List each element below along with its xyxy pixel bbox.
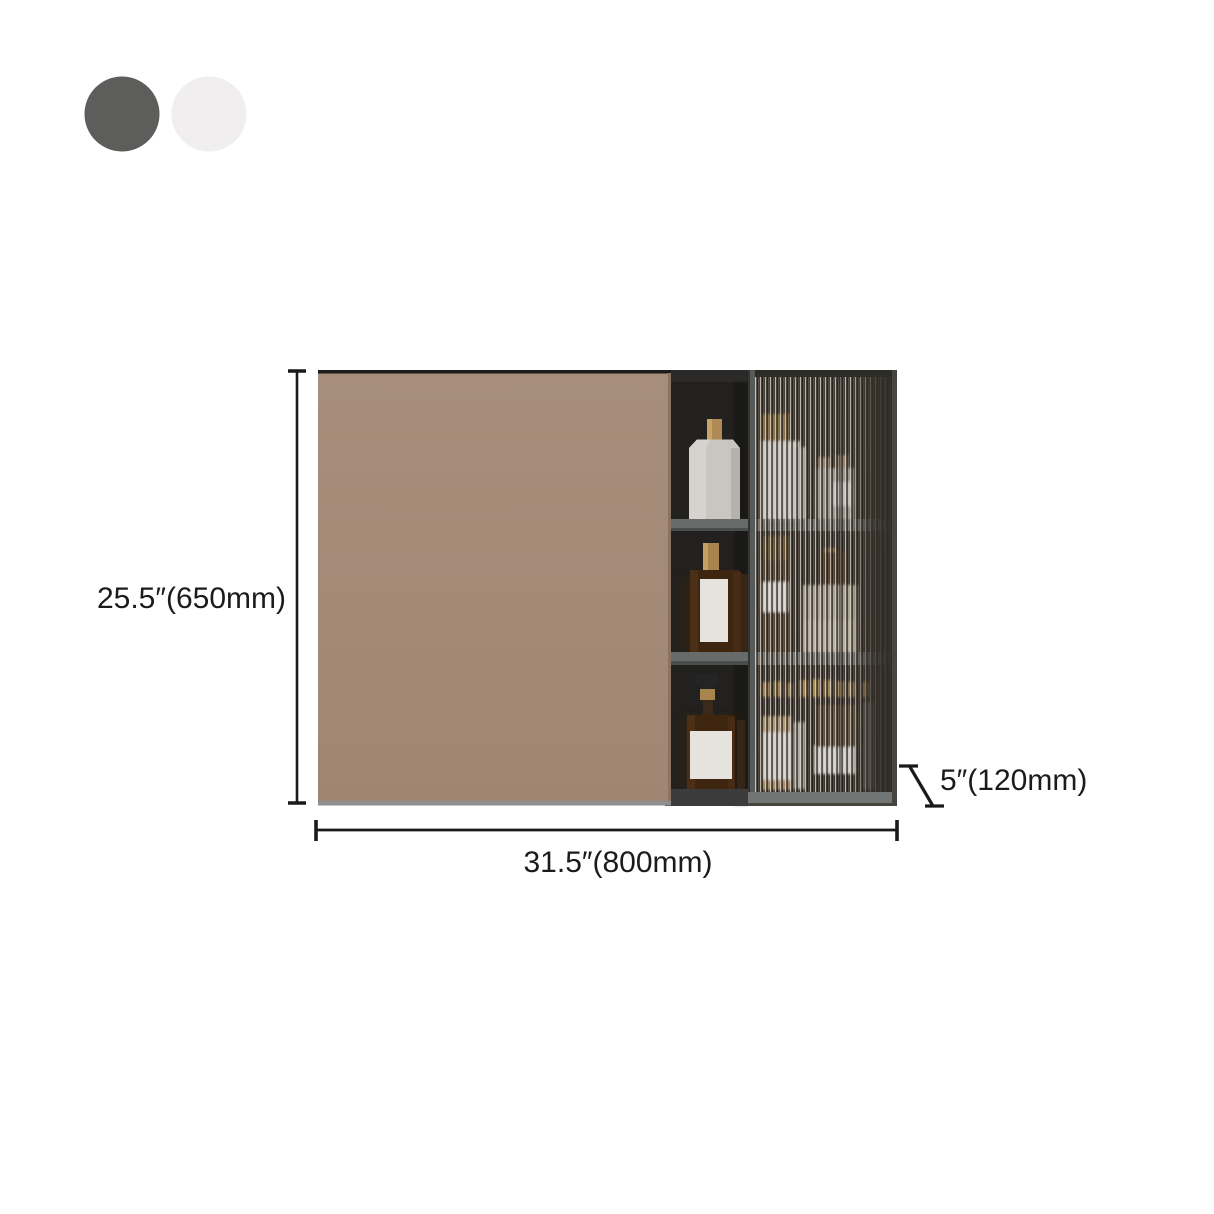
svg-text:31.5″(800mm): 31.5″(800mm) bbox=[523, 846, 712, 879]
svg-text:5″(120mm): 5″(120mm) bbox=[940, 764, 1087, 797]
svg-text:25.5″(650mm): 25.5″(650mm) bbox=[97, 582, 286, 615]
